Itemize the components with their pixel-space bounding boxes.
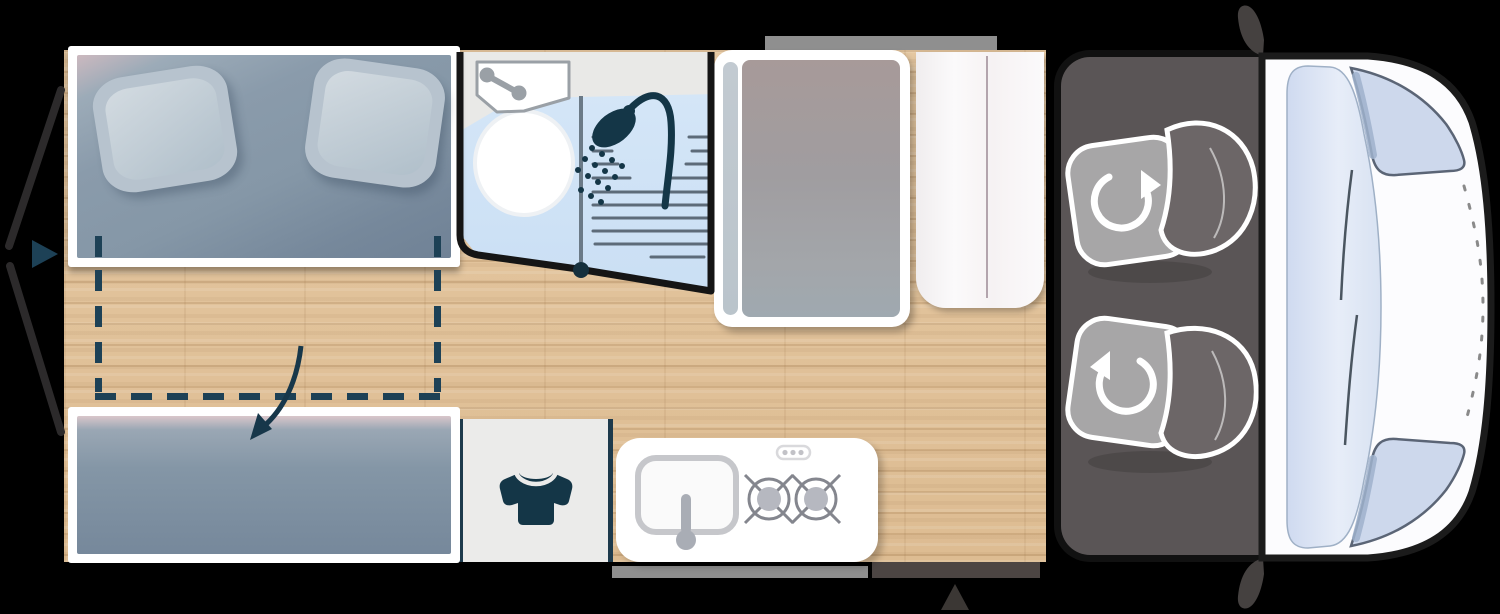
cab-floor [1054, 50, 1262, 562]
rear-door-left [9, 90, 61, 246]
van-body [1262, 56, 1491, 558]
wardrobe-door-handle [723, 62, 738, 315]
bench-cushion [77, 416, 451, 554]
corner-window-bottom [1351, 439, 1464, 546]
sliding-door-marker [872, 562, 1040, 578]
wardrobe-unit [714, 50, 910, 327]
campervan-floorplan [0, 0, 1500, 614]
kitchen-block [616, 438, 878, 562]
wiper-icon-2 [1345, 315, 1357, 445]
pillow-left-inner [102, 75, 227, 183]
hood-dashed-line [1464, 186, 1483, 428]
pillow-left [89, 61, 241, 197]
bench-seat [68, 407, 460, 563]
entry-arrow-icon [32, 240, 58, 268]
mirror-icon-top [1238, 6, 1264, 57]
rear-bed [68, 46, 460, 267]
window-marker-bottom [612, 566, 868, 578]
rear-bed-mattress [77, 55, 451, 258]
window-marker-top [765, 36, 997, 50]
wardrobe-panel [742, 60, 900, 317]
rear-door-right [10, 266, 61, 432]
corner-window-top-streak [1356, 76, 1373, 155]
fridge-door-split [986, 56, 988, 298]
mirror-icon-bottom [1238, 558, 1264, 609]
fridge-unit [916, 52, 1044, 308]
entry-triangle-bottom [941, 584, 969, 610]
corner-window-top [1351, 68, 1464, 175]
van-front [1238, 6, 1491, 609]
pillow-right-inner [315, 68, 435, 178]
clothes-closet [458, 419, 613, 562]
windshield [1287, 66, 1381, 548]
corner-window-bottom-streak [1356, 459, 1373, 538]
pillow-right [301, 54, 448, 191]
rear-doors-open [9, 90, 61, 432]
wiper-icon-1 [1341, 170, 1352, 300]
